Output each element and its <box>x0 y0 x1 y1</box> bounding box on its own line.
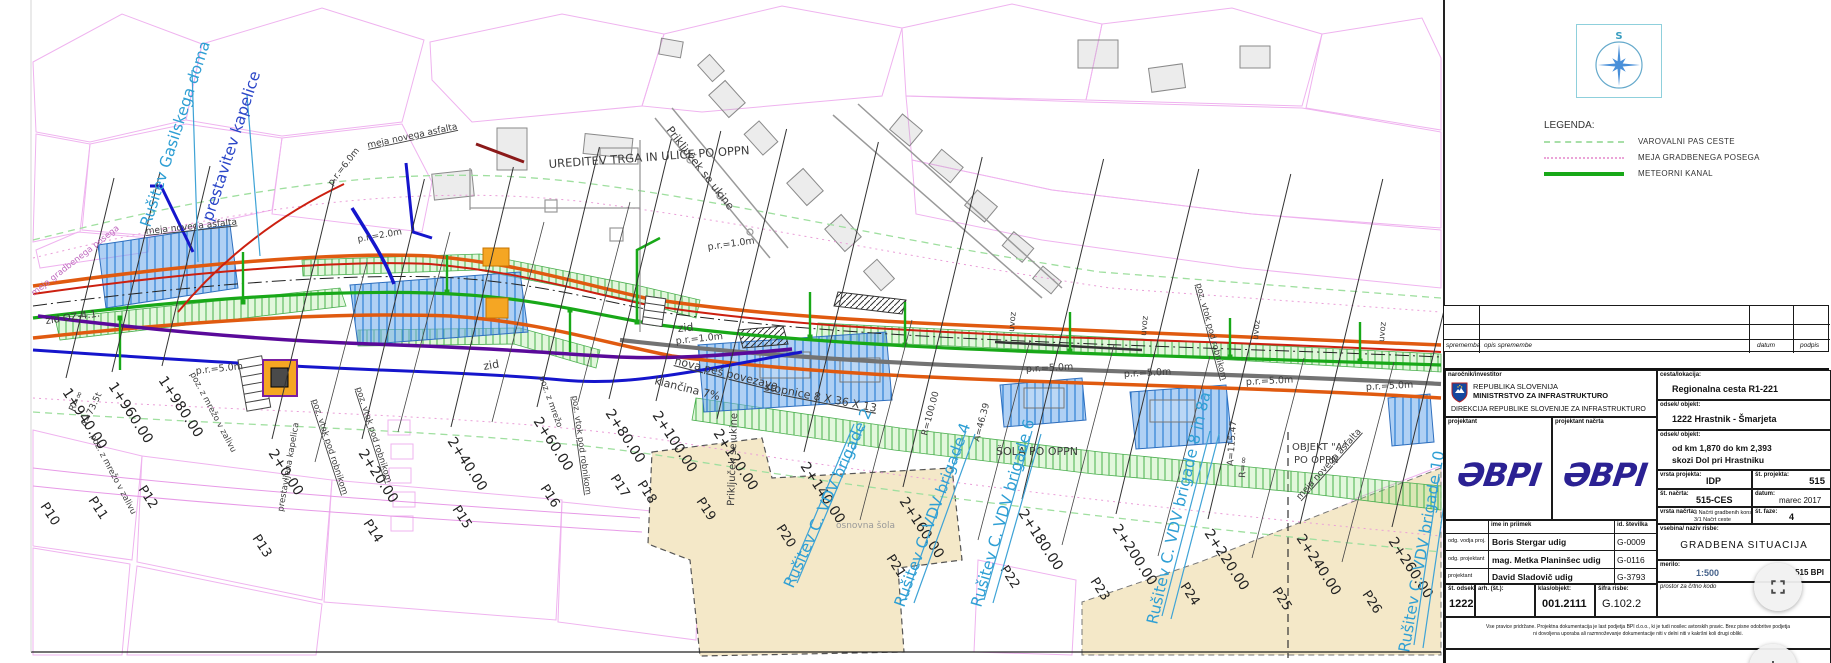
people-header-name: ime in priimek <box>1491 522 1531 528</box>
map-note: uvoz <box>1377 321 1389 342</box>
building-footprint <box>698 54 725 81</box>
legend-title: LEGENDA: <box>1544 120 1824 131</box>
subsection-label: odsek/ objekt: <box>1660 432 1700 438</box>
map-note: p.r.=5.0m <box>1366 380 1414 393</box>
building-footprint <box>1078 40 1118 68</box>
building-footprint <box>709 80 745 117</box>
building-footprint <box>497 128 527 170</box>
subsection-line2: skozi Dol pri Hrastniku <box>1672 455 1764 465</box>
person-id: G-0009 <box>1617 537 1645 547</box>
person-id: G-0116 <box>1617 555 1645 565</box>
plan-line <box>858 104 1062 288</box>
legend: LEGENDA: VAROVALNI PAS CESTE MEJA GRADBE… <box>1544 120 1824 185</box>
map-note: zid <box>677 321 694 335</box>
orange-marker <box>486 298 508 318</box>
plus-icon <box>1759 654 1787 663</box>
station-chainage-label: 1+960.00 <box>105 379 156 446</box>
person-role: odg. projektant <box>1448 556 1484 562</box>
blue-works-area <box>1388 394 1434 446</box>
sheet-code-value: G.102.2 <box>1602 598 1641 610</box>
designer-plan-cell: projektant načrta ƏBPI <box>1552 417 1657 520</box>
project-type-value: IDP <box>1706 476 1721 486</box>
dotted-pink-line-icon <box>1544 157 1624 159</box>
client-line1: REPUBLIKA SLOVENIJA <box>1473 382 1558 391</box>
disclaimer-line2: ni dovoljena uporaba ali razmnoževanje d… <box>1446 631 1830 638</box>
date-label: datum: <box>1755 491 1775 497</box>
revision-col-sprememba: sprememba <box>1446 342 1480 349</box>
people-header-id: id. številka <box>1617 522 1648 528</box>
building-footprint <box>659 38 683 58</box>
sheet-code-label: šifra risbe: <box>1598 586 1629 592</box>
demolition-label: prestavitev kapelice <box>199 69 264 223</box>
station-profile-label: P17 <box>607 472 633 501</box>
station-chainage-label: 2+200.00 <box>1109 521 1160 588</box>
map-note: poz. z mrežo v zalivu <box>187 371 238 455</box>
project-type-cell: vrsta projekta: IDP <box>1657 470 1752 489</box>
project-no-cell: št. projekta: 515 <box>1752 470 1831 489</box>
orange-marker <box>483 248 509 266</box>
plan-type-cell: vrsta načrta: 3 Načrti gradbenih konstru… <box>1657 507 1752 524</box>
drawing-title-label: vsebina/ naziv risbe: <box>1660 526 1719 532</box>
arh-cell: arh. (št.): <box>1475 584 1535 617</box>
person-name: Boris Stergar udig <box>1492 537 1566 547</box>
building-footprint <box>787 168 823 205</box>
plan-type-line2: 3/1 Načrt ceste <box>1694 517 1731 523</box>
map-note: uvoz <box>1251 319 1263 340</box>
revision-col-datum: datum <box>1757 342 1775 349</box>
klas-cell: klas/objekt: 001.2111 <box>1535 584 1595 617</box>
parcel-boundary <box>186 8 424 136</box>
plan-no-cell: št. načrta: 515-CES <box>1657 489 1752 507</box>
station-profile-label: P16 <box>537 482 563 511</box>
station-profile-label: P10 <box>37 500 63 529</box>
plan-no-value: 515-CES <box>1696 495 1733 505</box>
parcel-boundary <box>324 480 562 620</box>
client-cell: naročnik/investitor REPUBLIKA SLOVENIJA … <box>1445 370 1657 417</box>
map-note: p.r.=1.0m <box>707 235 756 252</box>
project-no-label: št. projekta: <box>1755 472 1789 478</box>
map-note: PO OPPN <box>1294 455 1339 466</box>
section-value: 1222 Hrastnik - Šmarjeta <box>1672 414 1777 424</box>
person-id: G-3793 <box>1617 572 1645 582</box>
parcel-boundary <box>127 566 322 655</box>
map-note: poz. vtok pod robnikom <box>309 398 349 496</box>
parcel-boundary <box>642 6 902 112</box>
title-block: naročnik/investitor REPUBLIKA SLOVENIJA … <box>1443 368 1829 663</box>
client-line3: DIREKCIJA REPUBLIKE SLOVENIJE ZA INFRAST… <box>1451 406 1646 413</box>
parcel-boundary <box>902 4 1102 100</box>
person-role: projektant <box>1448 573 1472 579</box>
building-footprint <box>929 149 963 182</box>
arh-label: arh. (št.): <box>1478 586 1504 592</box>
subsection-line1: od km 1,870 do km 2,393 <box>1672 443 1772 453</box>
drawing-title-cell: vsebina/ naziv risbe: GRADBENA SITUACIJA <box>1657 524 1831 560</box>
person-name: David Sladovič udig <box>1492 572 1573 582</box>
map-note: p.r.=5.0m <box>1246 375 1294 388</box>
road-value: Regionalna cesta R1-221 <box>1672 384 1778 394</box>
section-no-cell: št. odseka: 1222 <box>1445 584 1475 617</box>
scale-cell: merilo: 1:500 515 BPI <box>1657 560 1831 582</box>
road-label: cesta/lokacija: <box>1660 372 1701 378</box>
parcel-boundary <box>137 456 332 600</box>
project-no-value: 515 <box>1809 476 1825 487</box>
map-note: poz. vtok pod robnikom <box>1193 282 1229 381</box>
revision-col-opis: opis spremembe <box>1484 342 1532 349</box>
map-note: osnovna šola <box>836 520 895 531</box>
map-note: UREDITEV TRGA IN ULICE PO OPPN <box>548 143 750 171</box>
parcel-boundary <box>430 14 664 122</box>
legend-item-meteorni-kanal: METEORNI KANAL <box>1544 169 1824 178</box>
station-profile-label: P15 <box>449 503 475 532</box>
parcel-boundary <box>1086 8 1322 106</box>
building-footprint <box>1148 64 1185 92</box>
dashed-green-line-icon <box>1544 141 1624 143</box>
map-note: Priključek se ukine <box>664 124 737 213</box>
page: 1+940.00P101+960.00P111+980.00P122+0.00P… <box>0 0 1831 663</box>
scale-value: 1:500 <box>1696 568 1719 578</box>
klas-value: 001.2111 <box>1542 598 1587 610</box>
designer-plan-label: projektant načrta <box>1555 419 1604 425</box>
station-profile-label: P11 <box>85 494 111 523</box>
bpi-logo: ƏBPI <box>1454 456 1542 494</box>
map-note: uvoz <box>1139 315 1151 336</box>
disclaimer-line1: Vse pravice pridržane. Projektna dokumen… <box>1446 624 1830 631</box>
map-note: p.r.=5.0m <box>195 361 243 377</box>
site-plan-map[interactable]: 1+940.00P101+960.00P111+980.00P122+0.00P… <box>0 0 1443 663</box>
date-value: marec 2017 <box>1779 496 1821 505</box>
phase-value: 4 <box>1789 512 1794 522</box>
map-note: R=100.00 <box>920 390 941 437</box>
section-no-value: 1222 <box>1449 598 1473 610</box>
date-cell: datum: marec 2017 <box>1752 489 1831 507</box>
map-note: OBJEKT "A" <box>1292 442 1347 453</box>
legend-item-meja-posega: MEJA GRADBENEGA POSEGA <box>1544 153 1824 162</box>
parcel-boundary <box>33 548 130 655</box>
phase-cell: št. faze: 4 <box>1752 507 1831 524</box>
scale-label: merilo: <box>1660 562 1680 568</box>
station-chainage-label: 2+80.00 <box>602 406 648 466</box>
barcode-cell: prostor za črtno kodo <box>1657 582 1831 617</box>
legend-item-varovalni-pas: VAROVALNI PAS CESTE <box>1544 137 1824 146</box>
map-note: zid <box>482 357 500 373</box>
client-label: naročnik/investitor <box>1448 372 1502 378</box>
compass-star-icon <box>1598 44 1640 86</box>
people-table: ime in priimek id. številka odg. vodja p… <box>1445 520 1657 584</box>
plan-line <box>672 108 788 248</box>
parcel-boundary <box>33 134 90 242</box>
client-line2: MINISTRSTVO ZA INFRASTRUKTURO <box>1473 391 1608 400</box>
building-footprint <box>432 170 474 200</box>
blue-works-area <box>98 225 238 308</box>
plan-no-label: št. načrta: <box>1660 491 1689 497</box>
map-note: uvoz <box>1007 311 1019 332</box>
section-label: odsek/ objekt: <box>1660 402 1700 408</box>
station-profile-label: P13 <box>249 532 275 561</box>
map-note: A=46.39 <box>972 402 992 443</box>
building-footprint <box>1033 266 1062 294</box>
designer-label: projektant <box>1448 419 1477 425</box>
map-note: p.r.=5.0m <box>1026 362 1074 375</box>
revision-table: sprememba opis spremembe datum podpis <box>1443 305 1829 352</box>
fit-screen-button[interactable] <box>1754 563 1802 611</box>
barcode-label: prostor za črtno kodo <box>1660 584 1716 590</box>
designer-cell: projektant ƏBPI <box>1445 417 1552 520</box>
revision-col-podpis: podpis <box>1800 342 1819 349</box>
compass-rose: S <box>1576 24 1662 98</box>
plan-type-label: vrsta načrta: <box>1660 509 1696 515</box>
compass-icon: S <box>1577 25 1661 97</box>
map-note: A=115.47 <box>1226 420 1239 466</box>
drawing-title: GRADBENA SITUACIJA <box>1658 540 1830 551</box>
map-note: R=∞ <box>1238 456 1249 478</box>
phase-label: št. faze: <box>1755 509 1777 515</box>
section-cell: odsek/ objekt: 1222 Hrastnik - Šmarjeta <box>1657 400 1831 430</box>
person-name: mag. Metka Planinšec udig <box>1492 555 1601 565</box>
parcel-boundary <box>1306 18 1441 130</box>
station-chainage-label: 2+40.00 <box>444 434 490 494</box>
klas-label: klas/objekt: <box>1538 586 1571 592</box>
svg-text:S: S <box>1615 31 1622 42</box>
slovenia-coat-of-arms-icon <box>1451 382 1468 403</box>
building-footprint <box>825 214 861 251</box>
map-note: p.r.=5.0m <box>1124 367 1172 380</box>
project-type-label: vrsta projekta: <box>1660 472 1701 478</box>
sheet-code-cell: šifra risbe: G.102.2 <box>1595 584 1657 617</box>
building-footprint <box>965 190 998 222</box>
station-profile-label: P14 <box>360 517 386 546</box>
building-footprint <box>1240 46 1270 68</box>
bpi-logo: ƏBPI <box>1560 456 1648 494</box>
person-role: odg. vodja proj. <box>1448 538 1486 544</box>
road-cell: cesta/lokacija: Regionalna cesta R1-221 <box>1657 370 1831 400</box>
station-chainage-label: 2+180.00 <box>1015 506 1066 573</box>
fit-screen-icon <box>1764 573 1792 601</box>
demolition-label: Rušitev Gasilskega doma <box>137 39 214 229</box>
subsection-cell: odsek/ objekt: od km 1,870 do km 2,393 s… <box>1657 430 1831 470</box>
building-footprint <box>890 114 923 146</box>
building-footprint <box>864 259 895 290</box>
solid-green-line-icon <box>1544 172 1624 176</box>
